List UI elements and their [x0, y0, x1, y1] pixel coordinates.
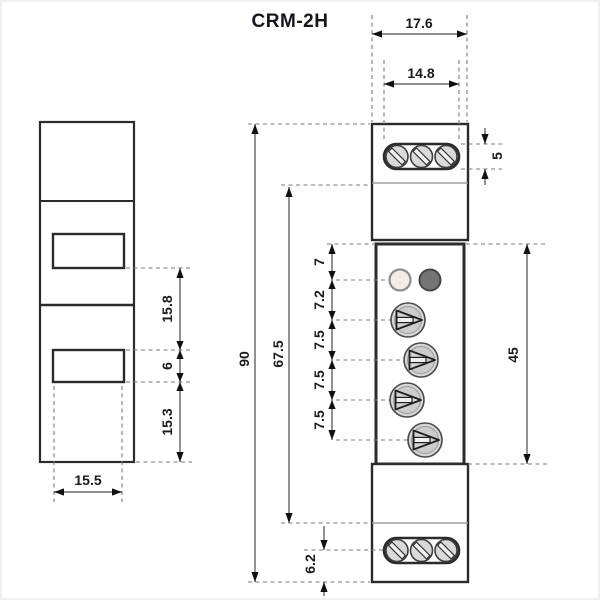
- dimension-side-width: 15.5: [54, 472, 122, 496]
- dim-label-terminal-width: 14.8: [407, 65, 434, 81]
- dim-label-total-height: 90: [236, 351, 252, 367]
- screw-icon: [435, 540, 457, 562]
- dimension-terminal-height: 5: [481, 128, 505, 185]
- rotary-knob-icon: [408, 423, 442, 457]
- side-view-slot-upper: [53, 234, 124, 268]
- front-view-top-section: [372, 124, 468, 240]
- led-indicator-dark: [420, 270, 441, 291]
- dimension-chain-side-view: 15.8 6 15.3: [159, 268, 184, 462]
- top-terminal-block: [384, 144, 459, 169]
- screw-icon: [435, 146, 457, 168]
- dimension-terminal-width: 14.8: [384, 65, 459, 88]
- dim-label-side-width: 15.5: [74, 472, 101, 488]
- dimensional-drawing: CRM-2H: [2, 2, 598, 598]
- dim-label-upper-gap: 15.8: [159, 295, 175, 322]
- page-title: CRM-2H: [252, 11, 329, 32]
- dim-label-lower-gap: 15.3: [159, 408, 175, 435]
- dimension-outer-width: 17.6: [372, 15, 467, 38]
- screw-icon: [386, 146, 408, 168]
- dim-label-body-height: 67.5: [270, 340, 286, 367]
- dim-label-bottom-terminal-offset: 6.2: [302, 554, 318, 574]
- dim-label-knob-gap3: 7.5: [311, 410, 327, 430]
- dim-label-slot-height: 6: [159, 362, 175, 370]
- screw-icon: [386, 540, 408, 562]
- dim-label-led-knob-gap: 7.2: [311, 290, 327, 310]
- led-indicator-light: [390, 270, 411, 291]
- dimension-body-height: 67.5: [270, 187, 293, 523]
- technical-drawing-page: CRM-2H: [0, 0, 600, 600]
- dim-label-outer-width: 17.6: [405, 15, 432, 31]
- rotary-knob-icon: [404, 343, 438, 377]
- dimension-bottom-terminal-offset: 6.2: [302, 526, 328, 596]
- dim-label-knob-gap1: 7.5: [311, 330, 327, 350]
- screw-icon: [411, 146, 433, 168]
- dim-label-led-offset: 7: [311, 258, 327, 266]
- screw-icon: [411, 540, 433, 562]
- dim-label-knob-gap2: 7.5: [311, 370, 327, 390]
- bottom-terminal-block: [384, 538, 459, 563]
- rotary-knob-icon: [390, 383, 424, 417]
- dim-label-panel-height: 45: [505, 347, 521, 363]
- dimension-total-height: 90: [236, 124, 259, 582]
- rotary-knob-icon: [391, 303, 425, 337]
- dim-label-terminal-height: 5: [489, 152, 505, 160]
- dimension-panel-height: 45: [505, 244, 531, 464]
- dimension-chain-panel-features: 7 7.2 7.5 7.5 7.5: [311, 244, 336, 440]
- side-view-slot-lower: [53, 350, 124, 382]
